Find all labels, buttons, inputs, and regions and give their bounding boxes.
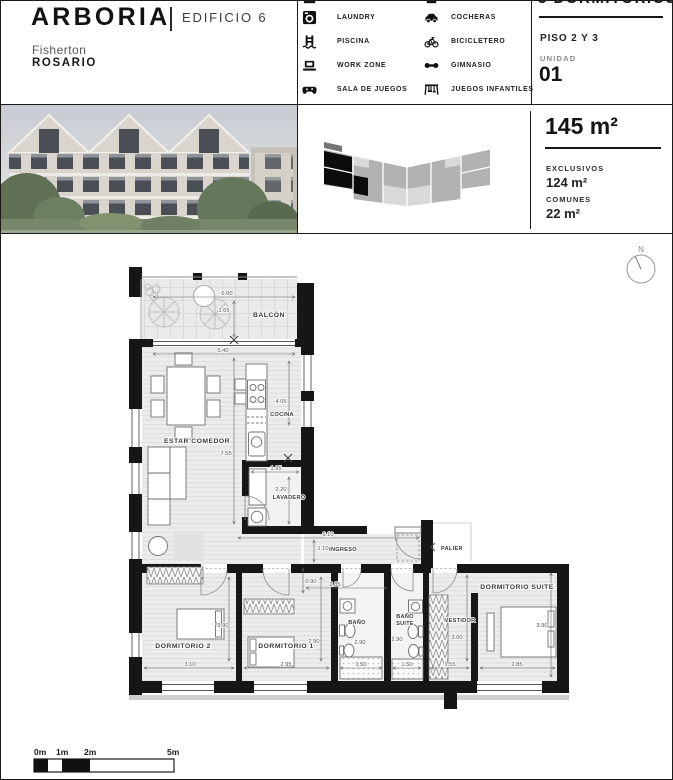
area-panel-divider — [530, 111, 531, 229]
room-label-dorm1: DORMITORIO 1 — [258, 643, 313, 650]
total-area: 145 m² — [545, 113, 618, 140]
compass: N — [627, 245, 655, 283]
amenity-label: PISCINA — [337, 38, 370, 45]
entry-door-leaf — [395, 527, 421, 533]
amenity-label: GIMNASIO — [451, 62, 491, 69]
amenity-label: COCHERAS — [451, 14, 496, 21]
dim: 1.50 — [355, 662, 366, 668]
unit-label: UNIDAD — [540, 54, 576, 63]
ground-line — [129, 695, 569, 700]
compass-north-label: N — [638, 245, 644, 254]
neighborhood: Fisherton — [32, 43, 86, 57]
room-label-ingreso: INGRESO — [329, 547, 357, 553]
dim: 1.65 — [218, 308, 229, 314]
room-label-palier: PALIER — [441, 546, 463, 552]
game-controller-icon — [302, 82, 317, 97]
bidet-banosuite — [409, 645, 419, 658]
scale-label-0: 0m — [34, 747, 47, 757]
floor-plan: 6.00 1.65 5.40 7.55 4.05 1.95 2.20 6.10 … — [1, 234, 672, 779]
room-label-lavadero: LAVADERO — [273, 495, 306, 501]
room-label-banosuite-2: SUITE — [396, 621, 414, 627]
floor-label: PISO 2 Y 3 — [540, 33, 599, 44]
sofa-chaise — [170, 447, 186, 499]
dim: 3.90 — [536, 623, 547, 629]
dim: 3.00 — [451, 635, 462, 641]
dim: 2.85 — [329, 582, 340, 588]
bench — [487, 613, 494, 651]
building-name: EDIFICIO 6 — [182, 10, 267, 25]
scale-label-1: 1m — [56, 747, 69, 757]
unit-title: 3 DORMITORIOS — [538, 0, 673, 7]
room-label-balcon: BALCÓN — [253, 310, 285, 319]
dim: 6.10 — [322, 532, 333, 538]
room-label-suite: DORMITORIO SUITE — [480, 584, 554, 591]
pool-ladder-icon — [302, 34, 317, 49]
bidet-bano — [344, 644, 354, 657]
scale-label-2: 2m — [84, 747, 97, 757]
washing-machine-icon — [302, 10, 317, 25]
unit-number: 01 — [539, 63, 562, 87]
dim: 1.95 — [270, 466, 281, 472]
dim: 2.85 — [511, 662, 522, 668]
city: ROSARIO — [32, 57, 97, 69]
brochure-page: ARBORIA EDIFICIO 6 Fisherton ROSARIO LAU… — [0, 0, 673, 780]
brand-logo: ARBORIA — [31, 3, 170, 32]
cut-icon — [424, 0, 439, 6]
dim: 3.90 — [217, 623, 228, 629]
dim: 2.90 — [391, 637, 402, 643]
dim: 2.90 — [354, 640, 365, 646]
amenity-label: SALA DE JUEGOS — [337, 86, 407, 93]
bicycle-icon — [424, 34, 439, 49]
comunes-value: 22 m² — [546, 206, 580, 221]
dining-table — [167, 367, 205, 425]
building-render-photo — [1, 105, 297, 233]
amenity-label: WORK ZONE — [337, 62, 386, 69]
amenity-label: LAUNDRY — [337, 14, 375, 21]
rug — [174, 531, 204, 561]
area-rule — [545, 147, 661, 149]
room-label-vestidor: VESTIDOR — [445, 618, 476, 624]
room-label-bano: BAÑO — [348, 619, 366, 626]
dim: 5.40 — [217, 348, 228, 354]
chair — [207, 400, 220, 417]
key-plan — [298, 105, 516, 233]
dim: 1.10 — [317, 546, 328, 552]
car-icon — [424, 10, 439, 25]
chair — [151, 376, 164, 393]
playground-icon — [424, 82, 439, 97]
dim: 4.05 — [275, 399, 286, 405]
dim: 6.00 — [221, 291, 232, 297]
sofa — [148, 447, 170, 525]
exclusivos-value: 124 m² — [546, 175, 587, 190]
dim: 1.55 — [444, 662, 455, 668]
dim: 0.90 — [305, 579, 316, 585]
comunes-label: COMUNES — [546, 195, 591, 204]
room-label-banosuite-1: BAÑO — [396, 613, 414, 620]
wardrobe-dorm2 — [147, 567, 203, 584]
stove — [248, 380, 266, 409]
amenity-label: BICICLETERO — [451, 38, 505, 45]
coffee-table — [149, 537, 168, 556]
exclusivos-label: EXCLUSIVOS — [546, 164, 604, 173]
chair — [175, 353, 192, 365]
scale-bar: 0m 1m 2m 5m — [34, 747, 180, 772]
wall-stub — [444, 693, 457, 709]
dim: 2.95 — [280, 662, 291, 668]
brand-divider — [170, 7, 172, 31]
unit-title-rule — [539, 16, 663, 18]
room-label-dorm2: DORMITORIO 2 — [155, 643, 210, 650]
toilet-tank — [340, 625, 345, 636]
dim: 7.55 — [220, 451, 231, 457]
divider-vertical-right — [531, 1, 532, 104]
room-label-cocina: COCINA — [270, 412, 294, 418]
compass-needle — [635, 256, 641, 269]
scale-label-5: 5m — [167, 747, 180, 757]
laptop-icon — [302, 58, 317, 73]
dim: 3.10 — [184, 662, 195, 668]
dumbbell-icon — [424, 58, 439, 73]
chair — [151, 400, 164, 417]
amenity-label: JUEGOS INFANTILES — [451, 86, 534, 93]
dim: 1.50 — [401, 662, 412, 668]
wardrobe-dorm1 — [244, 599, 294, 614]
chair — [207, 376, 220, 393]
room-label-estar: ESTAR COMEDOR — [164, 438, 230, 445]
cut-icon — [302, 0, 317, 6]
dim: 2.20 — [275, 487, 286, 493]
